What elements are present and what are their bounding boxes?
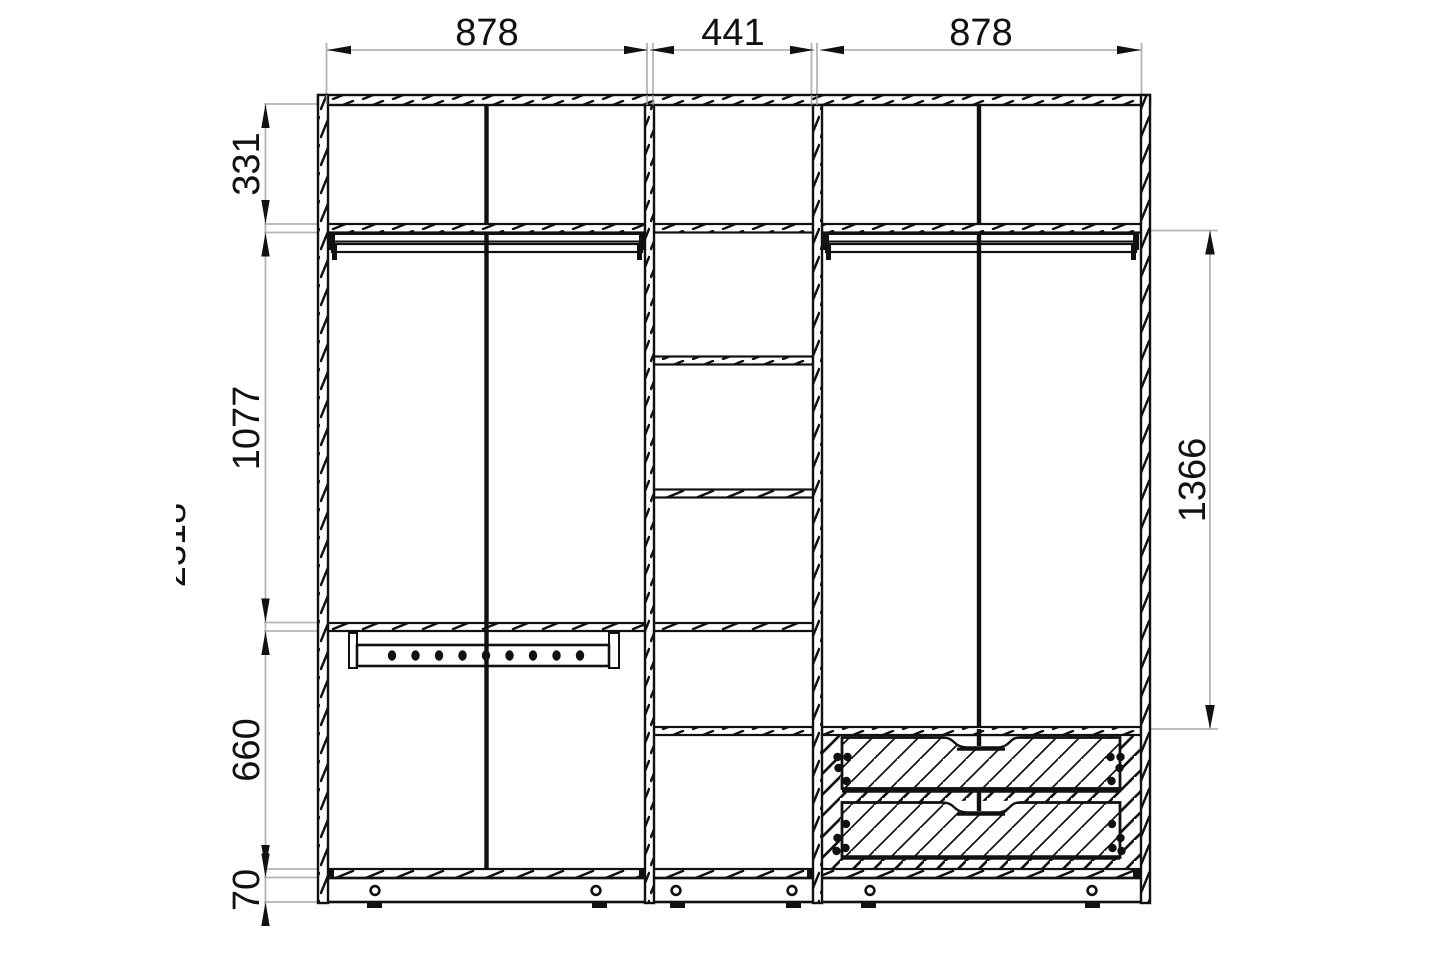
svg-text:331: 331 <box>226 132 268 195</box>
svg-text:878: 878 <box>949 12 1012 54</box>
svg-text:70: 70 <box>226 869 268 911</box>
svg-text:660: 660 <box>226 718 268 781</box>
svg-text:878: 878 <box>455 12 518 54</box>
svg-text:1366: 1366 <box>1172 438 1214 523</box>
svg-text:441: 441 <box>701 12 764 54</box>
svg-text:1077: 1077 <box>226 386 268 471</box>
